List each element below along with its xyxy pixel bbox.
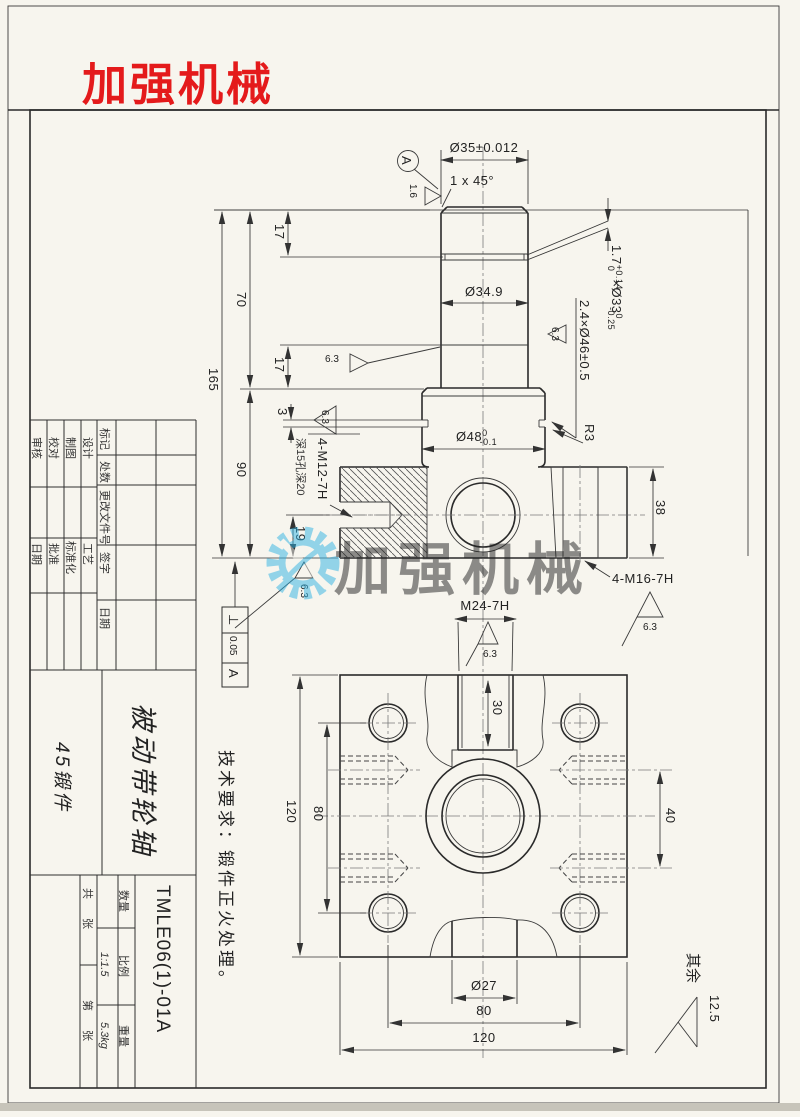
dim-d349: Ø34.9 [441, 284, 528, 303]
chamfer-note: 1 x 45° [442, 173, 494, 207]
material: 45锻件 [51, 742, 72, 813]
svg-text:80: 80 [311, 806, 326, 821]
svg-text:6.3: 6.3 [483, 649, 497, 660]
svg-text:17: 17 [272, 357, 287, 372]
roughness-63-icon [478, 622, 498, 644]
svg-text:6.3: 6.3 [643, 622, 657, 633]
svg-text:6.3: 6.3 [325, 354, 339, 365]
svg-text:A: A [399, 156, 414, 165]
dim-90: 90 [234, 391, 250, 556]
tb-weight-label: 重量 [117, 1025, 131, 1047]
tb-role-gongyi: 工艺 [81, 543, 94, 565]
side-hole-right-top [550, 756, 672, 784]
title-block: 标记 处数 更改文件号 签字 日期 审核 校对 制图 设计 日期 批准 标准化 … [30, 420, 196, 1088]
tb-label-riqi: 日期 [98, 607, 111, 629]
svg-text:3: 3 [275, 408, 290, 416]
svg-text:⊥: ⊥ [226, 614, 241, 626]
tb-qty-label: 数量 [117, 890, 130, 912]
tb-weight-value: 5.3kg [98, 1022, 110, 1050]
svg-text:Ø35±0.012: Ø35±0.012 [450, 140, 519, 155]
svg-text:90: 90 [234, 462, 249, 477]
tb-sheets-total: 共 张 [81, 888, 94, 937]
groove-note-d33: 1.7+0.140×Ø330-0.25 [527, 198, 624, 330]
tb-role-riqi2: 日期 [30, 543, 43, 565]
tb-role-biaozhunhua: 标准化 [64, 541, 78, 574]
roughness-63-bottomface: 6.3 [235, 562, 313, 628]
svg-text:1.6: 1.6 [407, 184, 418, 198]
svg-text:1 x 45°: 1 x 45° [450, 173, 494, 188]
dim-120-left: 120 [284, 675, 338, 957]
dim-165: 165 [206, 212, 222, 556]
gdt-frame: ⊥ 0.05 A [222, 562, 248, 687]
dim-30: 30 [488, 681, 505, 746]
dim-d48-text: Ø480-0.1 [456, 428, 497, 447]
drawing-sheet: 加强机械 [0, 0, 800, 1117]
svg-text:2.4×Ø46±0.5: 2.4×Ø46±0.5 [577, 300, 592, 381]
roughness-check-icon [655, 997, 697, 1053]
svg-text:6.3: 6.3 [549, 327, 560, 341]
roughness-63-icon [350, 354, 368, 372]
part-name: 被动带轮轴 [128, 703, 158, 858]
svg-text:其余: 其余 [684, 953, 702, 983]
dim-d27: Ø27 [452, 960, 517, 1004]
tb-label-gengai: 更改文件号 [98, 490, 112, 545]
dim-17-mid: 17 [272, 347, 288, 387]
svg-text:30: 30 [490, 700, 505, 715]
tech-requirements: 技术要求：锻件正火处理。 [216, 750, 235, 990]
dim-40: 40 [660, 772, 678, 866]
svg-text:6.3: 6.3 [319, 410, 330, 424]
svg-text:4-M12-7H: 4-M12-7H [315, 438, 330, 500]
svg-text:0.05: 0.05 [227, 636, 238, 656]
drawing-number: TMLE06(1)-01A [152, 885, 173, 1033]
tb-label-biaoji: 标记 [98, 428, 112, 450]
svg-text:165: 165 [206, 368, 221, 391]
side-hole-right-bottom [550, 854, 672, 882]
dim-38: 38 [629, 467, 668, 558]
watermark: 加强机械 [273, 533, 590, 602]
svg-text:4-M16-7H: 4-M16-7H [612, 571, 674, 586]
default-roughness: 其余 12.5 [655, 953, 722, 1053]
svg-text:深15孔深20: 深15孔深20 [294, 438, 307, 495]
dim-70: 70 [234, 212, 250, 387]
tb-scale-label: 比例 [117, 955, 131, 977]
tb-role-sheji: 设计 [81, 437, 94, 459]
svg-text:12.5: 12.5 [707, 995, 722, 1022]
svg-text:Ø34.9: Ø34.9 [465, 284, 503, 299]
dim-80-left: 80 [311, 723, 366, 913]
groove-note-d46: 2.4×Ø46±0.5 6.3 [548, 298, 592, 438]
groove-note-d33-text: 1.7+0.140×Ø330-0.25 [606, 245, 624, 330]
tb-role-pizhun: 批准 [47, 543, 61, 565]
svg-text:Ø27: Ø27 [471, 978, 497, 993]
note-m24: M24-7H 6.3 [455, 598, 516, 671]
dim-17-top: 17 [272, 212, 288, 255]
bore-partial-section [430, 917, 557, 957]
flange-plan-view: 30 120 80 40 [284, 675, 678, 1055]
dim-d35: Ø35±0.012 [441, 140, 528, 204]
dim-d48: Ø480-0.1 [422, 428, 545, 449]
svg-text:17: 17 [272, 224, 287, 239]
hatch-right [598, 467, 627, 558]
tb-role-shenhe: 审核 [30, 437, 44, 459]
tb-sheet-index: 第 张 [81, 1000, 95, 1049]
roughness-63-icon [637, 592, 663, 617]
tb-role-jiaodui: 校对 [47, 437, 61, 459]
svg-text:A: A [226, 669, 241, 678]
tb-scale-value: 1:1.5 [98, 952, 110, 977]
svg-text:70: 70 [234, 292, 249, 307]
svg-text:120: 120 [284, 800, 299, 823]
roughness-63-left: 6.3 [325, 347, 440, 372]
tb-role-zhitu: 制图 [64, 437, 77, 459]
svg-text:80: 80 [476, 1003, 491, 1018]
svg-text:40: 40 [663, 808, 678, 823]
tb-label-qianzi: 签字 [98, 552, 112, 574]
side-hole-left-bottom [328, 854, 420, 882]
tb-label-chushu: 处数 [98, 461, 111, 483]
gear-logo-icon [273, 533, 333, 593]
note-m16: 4-M16-7H 6.3 [585, 561, 674, 646]
svg-text:38: 38 [653, 500, 668, 515]
svg-text:120: 120 [472, 1030, 495, 1045]
dim-3: 3 [275, 404, 291, 443]
drawing-canvas: Ø35±0.012 A 1.6 1 x 45° [0, 0, 800, 1117]
side-hole-left-top [328, 756, 420, 784]
svg-text:R3: R3 [582, 424, 597, 442]
m24-partial-section [425, 675, 545, 767]
scan-edge-shadow [0, 1103, 800, 1111]
watermark-text: 加强机械 [334, 538, 590, 602]
